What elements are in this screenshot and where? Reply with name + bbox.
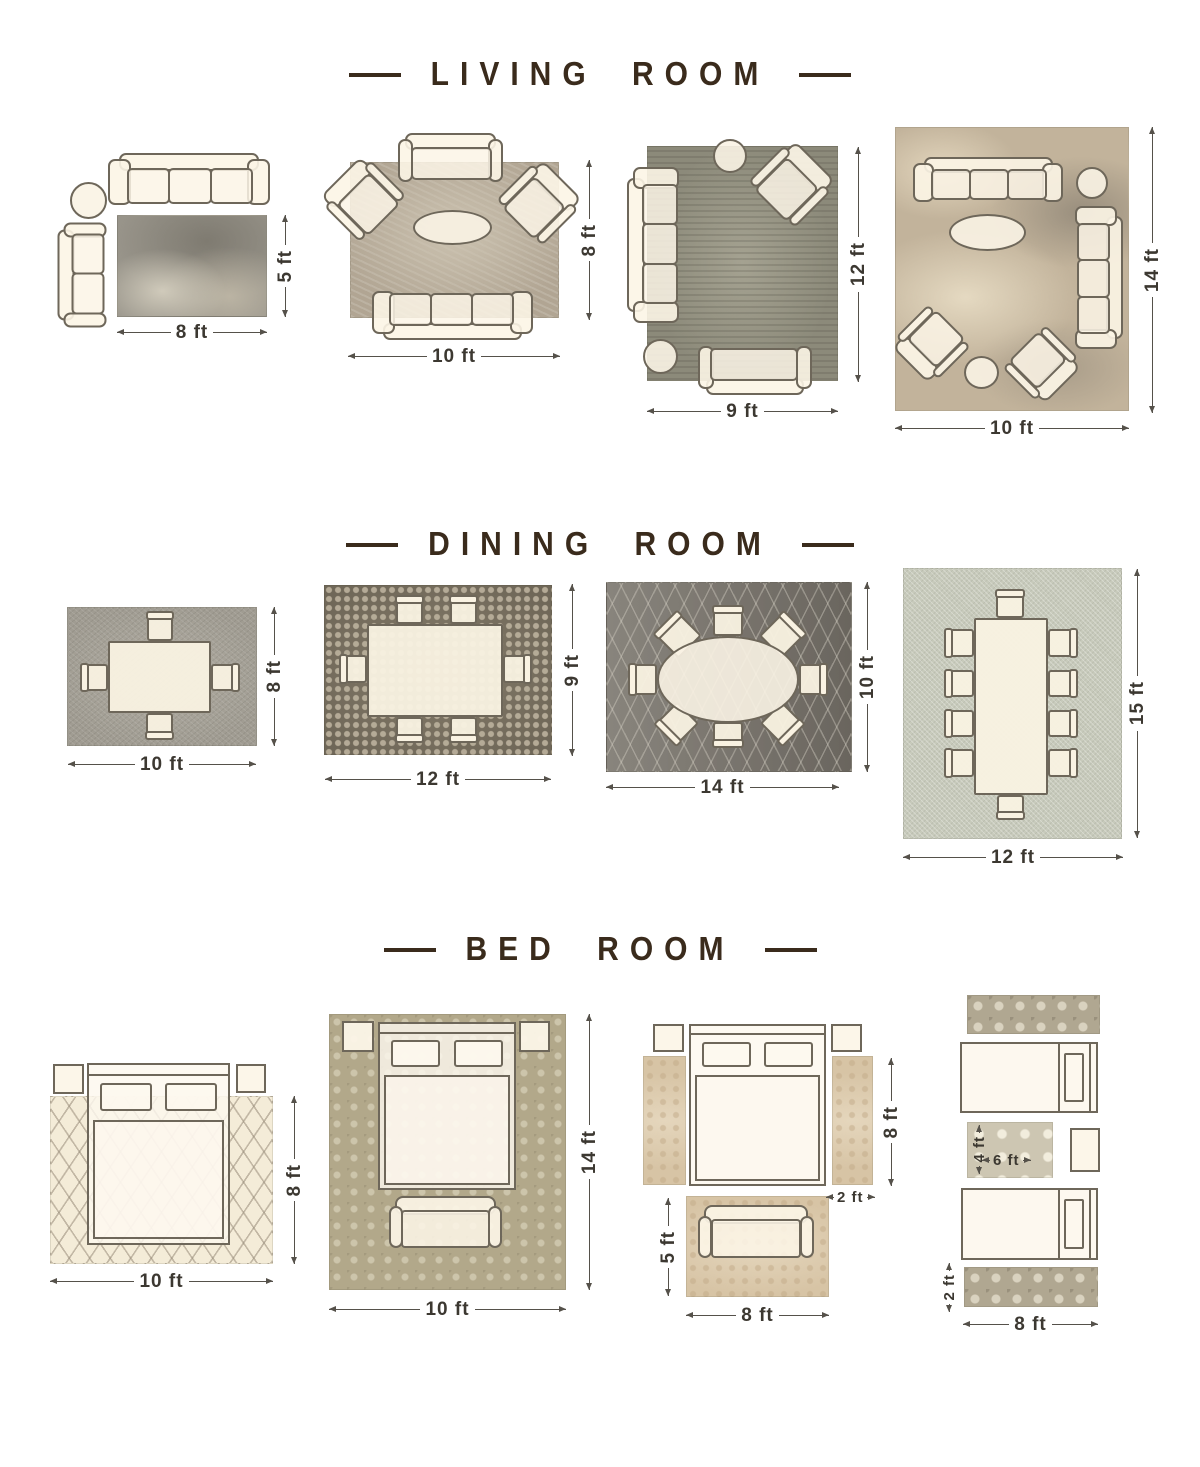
dimension-label: 14 ft xyxy=(1143,248,1162,292)
bench-arm xyxy=(698,1216,712,1258)
pillow xyxy=(1064,1199,1084,1249)
bench-arm xyxy=(800,1216,814,1258)
dining-chair-top-2 xyxy=(450,598,477,624)
bed-layout-runners: 8 ft 2 ft 5 ft 8 ft xyxy=(640,1018,910,1330)
dimension-line xyxy=(867,1197,875,1199)
dimension-mid-rug-width: 6 ft xyxy=(982,1153,1044,1168)
dimension-line xyxy=(475,1309,566,1311)
dimension-line xyxy=(858,292,860,382)
dimension-line xyxy=(867,582,869,650)
title-dash-right xyxy=(765,948,817,952)
dimension-label: 8 ft xyxy=(1014,1315,1047,1334)
bed-divider xyxy=(1058,1190,1060,1258)
dimension-label: 8 ft xyxy=(176,323,209,342)
dimension-line xyxy=(274,607,276,655)
dimension-height: 12 ft xyxy=(849,147,868,382)
dining-chair-right-3 xyxy=(1048,710,1075,737)
section-title-dining-room: DINING ROOM xyxy=(0,528,1200,562)
dimension-line xyxy=(1137,569,1139,676)
bench-seat xyxy=(401,1210,489,1248)
dimension-line xyxy=(606,787,695,789)
bench-seat xyxy=(711,1219,802,1258)
dimension-line xyxy=(294,1096,296,1159)
dimension-line xyxy=(867,704,869,772)
chair-back xyxy=(231,663,240,692)
chair-back xyxy=(819,663,828,696)
dimension-line xyxy=(50,1281,134,1283)
foot-bench xyxy=(698,1205,814,1258)
dimension-runner-width: 2 ft xyxy=(942,1263,957,1311)
dimension-line xyxy=(750,787,839,789)
title-dash-left xyxy=(384,948,436,952)
dimension-width: 10 ft xyxy=(348,347,560,366)
sofa-seats xyxy=(411,147,491,181)
dimension-width: 10 ft xyxy=(895,419,1129,438)
dining-chair-top xyxy=(713,608,743,636)
pillow xyxy=(454,1040,504,1066)
dimension-label: 8 ft xyxy=(265,660,284,693)
dimension-label: 15 ft xyxy=(1128,681,1147,725)
sofa-seats xyxy=(642,186,678,305)
dining-chair-left-4 xyxy=(947,749,974,777)
dimension-label: 10 ft xyxy=(425,1300,469,1319)
runner-rug-right xyxy=(832,1056,873,1185)
loveseat-top xyxy=(398,133,503,183)
dimension-line xyxy=(982,1160,990,1162)
chair-back xyxy=(395,595,424,604)
queen-bed xyxy=(689,1024,826,1186)
dining-chair-top xyxy=(147,614,173,641)
dimension-line xyxy=(329,1309,420,1311)
round-side-table-bottom xyxy=(643,339,678,374)
runner-rug-left xyxy=(643,1056,686,1185)
dimension-line xyxy=(686,1315,736,1317)
bed-divider xyxy=(1058,1044,1060,1111)
sofa-arm xyxy=(633,301,679,323)
chair-back xyxy=(944,669,953,698)
dimension-label: 10 ft xyxy=(140,755,184,774)
dimension-line xyxy=(647,411,721,413)
dimension-width: 9 ft xyxy=(647,402,838,421)
dimension-label: 12 ft xyxy=(991,848,1035,867)
sofa-arm xyxy=(796,347,812,390)
living-layout-9x12: 12 ft 9 ft xyxy=(625,135,885,430)
rug-size-guide: LIVING ROOM 5 ft 8 ft xyxy=(0,0,1200,1467)
dimension-line xyxy=(1039,428,1129,430)
dimension-label: 5 ft xyxy=(276,250,295,283)
dimension-line xyxy=(891,1058,893,1101)
dining-chair-right xyxy=(799,664,825,695)
dimension-line xyxy=(68,764,135,766)
chair-back xyxy=(145,731,174,740)
bed-layout-10x8: 8 ft 10 ft xyxy=(45,1055,315,1305)
sofa-three-seat xyxy=(108,153,270,207)
dimension-label: 10 ft xyxy=(858,655,877,699)
dimension-line xyxy=(117,332,171,334)
dimension-line xyxy=(1023,1160,1031,1162)
dimension-line xyxy=(589,160,591,219)
bed-layout-twin-runners: 4 ft 6 ft 2 ft 8 ft xyxy=(930,990,1165,1335)
dimension-line xyxy=(979,1125,981,1133)
dimension-label: 14 ft xyxy=(700,778,744,797)
sofa-three-seat-left xyxy=(627,167,681,323)
queen-bed xyxy=(378,1022,516,1190)
bed-body xyxy=(695,1075,820,1181)
dimension-line xyxy=(285,287,287,317)
dimension-line xyxy=(189,764,256,766)
dining-layout-12x15: 15 ft 12 ft xyxy=(898,565,1173,880)
nightstand-right xyxy=(236,1064,266,1093)
dimension-label: 2 ft xyxy=(942,1274,957,1301)
dining-chair-right-4 xyxy=(1048,749,1075,777)
dimension-label: 8 ft xyxy=(741,1306,774,1325)
section-title-text: LIVING ROOM xyxy=(431,56,770,94)
dimension-line xyxy=(891,1143,893,1186)
dimension-label: 10 ft xyxy=(139,1272,183,1291)
dimension-line xyxy=(963,1324,1009,1326)
sofa-three-seat-top xyxy=(913,157,1063,203)
oval-dining-table xyxy=(657,636,799,723)
dimension-line xyxy=(1137,731,1139,838)
dimension-foot-rug-width: 8 ft xyxy=(686,1306,829,1325)
dimension-width: 10 ft xyxy=(68,755,256,774)
round-side-table-top xyxy=(713,139,747,173)
dimension-line xyxy=(189,1281,273,1283)
dimension-line xyxy=(213,332,267,334)
section-title-living-room: LIVING ROOM xyxy=(0,58,1200,92)
dimension-width: 12 ft xyxy=(325,770,551,789)
queen-bed xyxy=(87,1063,230,1245)
dimension-runner-length: 8 ft xyxy=(963,1315,1098,1334)
dimension-width: 10 ft xyxy=(50,1272,273,1291)
nightstand-left xyxy=(53,1064,84,1094)
bed-layout-10x14: 14 ft 10 ft xyxy=(325,1010,610,1325)
chair-back xyxy=(628,663,637,696)
dimension-label: 8 ft xyxy=(285,1164,304,1197)
chair-back xyxy=(1069,748,1078,778)
dining-chair-left xyxy=(83,664,108,691)
dimension-line xyxy=(1052,1324,1098,1326)
title-dash-left xyxy=(349,73,401,77)
title-dash-right xyxy=(802,543,854,547)
headboard xyxy=(380,1024,514,1034)
chair-back xyxy=(339,654,348,684)
dining-chair-bottom xyxy=(146,713,173,737)
dimension-line xyxy=(895,428,985,430)
dining-chair-top-1 xyxy=(396,598,423,624)
dimension-line xyxy=(589,1179,591,1290)
chair-back xyxy=(996,811,1025,820)
dimension-line xyxy=(668,1268,670,1296)
loveseat-vertical xyxy=(58,223,108,328)
dining-chair-bottom-2 xyxy=(450,717,477,740)
dimension-line xyxy=(589,261,591,320)
dimension-line xyxy=(1040,857,1123,859)
dimension-height: 15 ft xyxy=(1128,569,1147,838)
chair-back xyxy=(1069,628,1078,658)
chair-back xyxy=(395,734,424,743)
twin-bed-bottom xyxy=(961,1188,1098,1260)
dimension-line xyxy=(285,215,287,245)
chair-back xyxy=(712,605,744,614)
bed-body xyxy=(93,1120,224,1239)
dimension-line xyxy=(589,1014,591,1125)
dimension-foot-rug-height: 5 ft xyxy=(659,1198,678,1296)
dimension-width: 14 ft xyxy=(606,778,839,797)
pillow xyxy=(100,1083,151,1111)
pillow xyxy=(764,1042,813,1067)
chair-back xyxy=(1069,709,1078,738)
dining-chair-top xyxy=(996,592,1024,618)
round-side-table-bottom xyxy=(964,356,999,389)
dining-chair-right xyxy=(211,664,237,691)
dimension-line xyxy=(294,1201,296,1264)
chair-back xyxy=(712,739,744,748)
chair-back xyxy=(449,734,478,743)
chair-back xyxy=(944,709,953,738)
dimension-label: 9 ft xyxy=(726,402,759,421)
bed-body xyxy=(384,1075,510,1185)
dining-chair-left-1 xyxy=(947,629,974,657)
dimension-label: 14 ft xyxy=(580,1130,599,1174)
dimension-width: 10 ft xyxy=(329,1300,566,1319)
sofa-three-seat-right xyxy=(1074,206,1123,349)
dimension-label: 10 ft xyxy=(432,347,476,366)
sofa-seats xyxy=(931,169,1045,200)
section-title-text: BED ROOM xyxy=(466,931,735,969)
dimension-label: 5 ft xyxy=(659,1231,678,1264)
dimension-line xyxy=(274,698,276,746)
dimension-runner-length: 8 ft xyxy=(882,1058,901,1186)
pillow xyxy=(702,1042,751,1067)
nightstand xyxy=(1070,1128,1100,1172)
title-dash-right xyxy=(799,73,851,77)
dining-table-long xyxy=(974,618,1048,795)
dimension-label: 8 ft xyxy=(882,1106,901,1139)
dimension-line xyxy=(572,584,574,649)
headboard xyxy=(89,1065,228,1076)
dimension-line xyxy=(572,691,574,756)
dimension-label: 10 ft xyxy=(990,419,1034,438)
dining-layout-12x9: 9 ft 12 ft xyxy=(320,578,590,793)
dining-chair-left-3 xyxy=(947,710,974,737)
dimension-line xyxy=(979,1166,981,1174)
runner-rug-top xyxy=(967,995,1100,1034)
dimension-height: 14 ft xyxy=(580,1014,599,1290)
dimension-line xyxy=(325,779,411,781)
dimension-label: 2 ft xyxy=(837,1190,864,1205)
dining-chair-right xyxy=(503,655,529,683)
sofa-seats xyxy=(1077,223,1110,332)
chair-back xyxy=(80,663,89,692)
dining-chair-right-2 xyxy=(1048,670,1075,697)
dimension-line xyxy=(903,857,986,859)
dimension-label: 12 ft xyxy=(416,770,460,789)
chair-back xyxy=(1069,669,1078,698)
title-dash-left xyxy=(346,543,398,547)
dining-chair-bottom xyxy=(997,795,1024,817)
dimension-line xyxy=(668,1198,670,1226)
dimension-width: 12 ft xyxy=(903,848,1123,867)
living-layout-10x8: 8 ft 10 ft xyxy=(330,125,615,380)
chair-back xyxy=(449,595,478,604)
dimension-width: 8 ft xyxy=(117,323,267,342)
sofa-arm xyxy=(64,313,107,328)
dimension-runner-width: 2 ft xyxy=(826,1190,878,1205)
dimension-line xyxy=(764,411,838,413)
round-side-table-top-right xyxy=(1076,167,1108,199)
dining-chair-left xyxy=(631,664,657,695)
dimension-height: 5 ft xyxy=(276,215,295,317)
dimension-line xyxy=(348,356,427,358)
oval-coffee-table xyxy=(949,214,1026,251)
section-title-text: DINING ROOM xyxy=(428,526,772,564)
dimension-height: 8 ft xyxy=(285,1096,304,1264)
dimension-line xyxy=(949,1304,951,1312)
dimension-label: 9 ft xyxy=(563,654,582,687)
living-layout-8x5: 5 ft 8 ft xyxy=(50,145,310,355)
dining-chair-bottom-1 xyxy=(396,717,423,740)
foot-bench xyxy=(389,1196,502,1248)
chair-back xyxy=(523,654,532,684)
headboard xyxy=(1089,1044,1091,1111)
sofa-seats xyxy=(712,348,799,382)
dining-layout-14x10: 10 ft 14 ft xyxy=(600,578,890,808)
twin-bed-top xyxy=(960,1042,1098,1113)
nightstand-left xyxy=(342,1021,374,1052)
chair-back xyxy=(944,628,953,658)
sofa-seats xyxy=(127,168,250,204)
chair-back xyxy=(995,589,1025,598)
dining-table xyxy=(367,624,503,717)
pillow xyxy=(165,1083,216,1111)
oval-coffee-table xyxy=(413,210,492,245)
dimension-line xyxy=(1152,127,1154,243)
sofa-arm xyxy=(510,292,533,335)
dining-chair-right-1 xyxy=(1048,629,1075,657)
nightstand-right xyxy=(519,1021,550,1052)
dimension-label: 12 ft xyxy=(849,242,868,286)
section-title-bed-room: BED ROOM xyxy=(0,933,1200,967)
dimension-height: 8 ft xyxy=(265,607,284,746)
dimension-height: 8 ft xyxy=(580,160,599,320)
sofa-three-seat-bottom xyxy=(372,290,533,340)
dimension-label: 8 ft xyxy=(580,224,599,257)
dimension-line xyxy=(858,147,860,237)
bench-arm xyxy=(488,1206,502,1248)
pillow xyxy=(391,1040,441,1066)
chair-back xyxy=(146,611,174,620)
chair-back xyxy=(944,748,953,778)
sofa-seats xyxy=(391,293,513,327)
nightstand-right xyxy=(831,1024,862,1052)
sofa-seats xyxy=(71,235,105,315)
dining-chair-bottom xyxy=(713,722,743,745)
nightstand-left xyxy=(653,1024,684,1052)
loveseat-bottom xyxy=(698,345,812,395)
dimension-line xyxy=(465,779,551,781)
dining-chair-left-2 xyxy=(947,670,974,697)
headboard xyxy=(691,1026,824,1035)
dimension-height: 9 ft xyxy=(563,584,582,756)
dimension-line xyxy=(949,1263,951,1271)
dimension-line xyxy=(1152,297,1154,413)
dining-layout-10x8: 8 ft 10 ft xyxy=(60,600,305,790)
headboard xyxy=(1089,1190,1091,1258)
runner-rug-bottom xyxy=(964,1267,1098,1307)
dimension-line xyxy=(481,356,560,358)
living-layout-10x14: 14 ft 10 ft xyxy=(890,120,1180,450)
dining-chair-left xyxy=(342,655,367,683)
dimension-height: 14 ft xyxy=(1143,127,1162,413)
dimension-line xyxy=(826,1197,834,1199)
dining-table xyxy=(108,641,211,713)
pillow xyxy=(1064,1053,1084,1103)
rug-8x5 xyxy=(117,215,267,317)
round-side-table xyxy=(70,182,107,219)
dimension-line xyxy=(779,1315,829,1317)
dimension-height: 10 ft xyxy=(858,582,877,772)
dimension-label: 6 ft xyxy=(993,1153,1020,1168)
